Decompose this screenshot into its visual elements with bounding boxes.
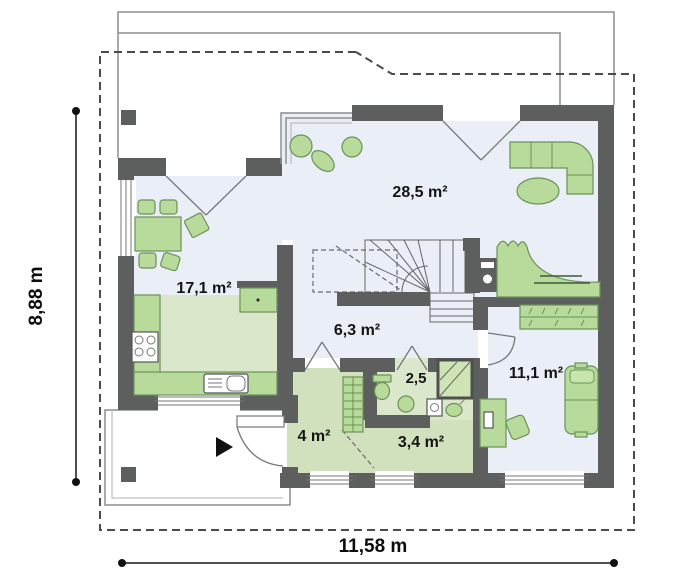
washbasin [398,396,414,412]
hall-area-label: 6,3 m² [334,322,380,339]
plant [290,135,312,157]
utility-area-label: 3,4 m² [398,434,444,451]
bathroom-area-label: 2,5 [406,370,427,387]
kitchen-area-label: 17,1 m² [176,280,231,297]
chair [160,200,177,214]
living-room-area-label: 28,5 m² [392,184,447,201]
chair [139,253,156,268]
toilet-tank [373,375,391,382]
floor-plan-page: 28,5 m² 17,1 m² 6,3 m² 2,5 11,1 m² 4 m² … [0,0,700,575]
width-dimension-label: 11,58 m [339,536,408,557]
floor-plan-drawing: 28,5 m² 17,1 m² 6,3 m² 2,5 11,1 m² 4 m² … [0,0,700,575]
plant [342,137,362,157]
washing-machine [427,399,442,416]
bedroom-area-label: 11,1 m² [509,365,563,382]
toilet [375,383,390,400]
entrance-door-leaf [237,416,284,427]
entry-area-label: 4 m² [298,428,331,445]
chair [138,200,155,214]
porch-column [121,467,136,482]
small-basin [446,404,462,417]
coffee-table [517,178,559,204]
pillow [570,370,594,383]
height-dimension-label: 8,88 m [26,266,47,325]
terrace-column [121,110,136,125]
dining-table [135,217,181,251]
fireplace [478,258,497,292]
stove [132,332,158,362]
